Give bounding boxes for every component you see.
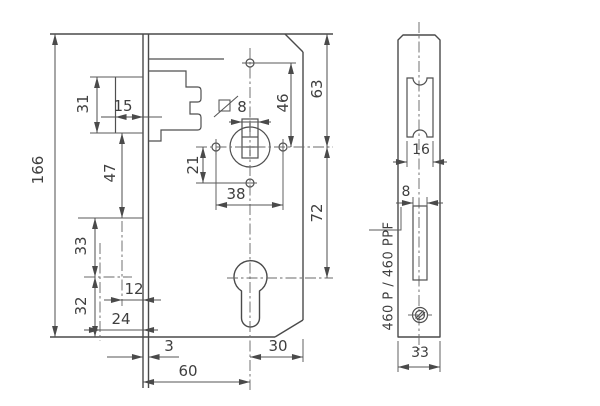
- dimension-cylinder-to-back-edge: 30: [250, 337, 303, 362]
- square-symbol: [219, 100, 230, 111]
- dimension-label: 12: [124, 280, 143, 298]
- dimension-fixing-hole-spacing: 38: [216, 152, 283, 210]
- dimension-label: 8: [402, 184, 411, 200]
- dimension-label: 166: [29, 156, 47, 185]
- dimension-label: 15: [113, 97, 132, 115]
- dimension-label: 60: [178, 362, 197, 380]
- dimension-label: 3: [164, 337, 174, 355]
- lock-dimension-drawing: 166 31 15 47 33 32: [0, 0, 600, 406]
- dimension-cylinder-to-bottom: 32: [72, 277, 95, 337]
- dimension-label: 32: [72, 296, 90, 315]
- dimension-label: 72: [308, 203, 326, 222]
- latch-cutout: [407, 78, 433, 137]
- dimension-label: 33: [411, 345, 429, 361]
- face-view: 16 8 33 460 P / 460 PPF: [369, 22, 447, 372]
- dimension-label: 47: [101, 163, 119, 182]
- dimension-label: 63: [308, 79, 326, 98]
- dimension-overall-height: 166: [29, 34, 55, 337]
- dimension-label: 16: [412, 142, 430, 158]
- dimension-top-to-hub: 63: [308, 34, 327, 147]
- cylinder-slot: [413, 206, 427, 280]
- product-model-label: 460 P / 460 PPF: [382, 221, 397, 330]
- dimension-spindle-square: 8: [214, 96, 271, 122]
- dimension-latch-protrusion: 15: [101, 97, 162, 117]
- dimension-label: 33: [72, 236, 90, 255]
- dimension-label: 21: [184, 155, 202, 174]
- technical-drawing-page: 166 31 15 47 33 32: [0, 0, 600, 406]
- dimension-latch-cutout-width: 16: [393, 141, 447, 167]
- dimension-cylinder-slot-width: 8: [369, 184, 443, 230]
- latch-bolt: [90, 59, 224, 141]
- dimension-label: 38: [226, 185, 245, 203]
- dimension-faceplate-width: 33: [398, 341, 440, 372]
- dimension-hub-to-lower-hole: 21: [184, 147, 203, 183]
- dimension-axis-block-upper: 33: [72, 218, 95, 277]
- dimension-latch-to-axis: 47: [78, 133, 143, 218]
- screw-hole: [408, 308, 432, 323]
- dimension-hub-to-top-hole: 46: [274, 63, 292, 147]
- dimension-hub-to-cylinder: 72: [308, 147, 327, 278]
- latch-bolt-body: [149, 71, 202, 141]
- dimension-label: 31: [74, 94, 92, 113]
- cylinder-hole: [234, 261, 267, 327]
- case-top-chamfer: [285, 34, 303, 52]
- dimension-label: 46: [274, 93, 292, 112]
- fixing-holes: [196, 59, 296, 187]
- dimension-label: 8: [237, 98, 247, 116]
- main-view: 166 31 15 47 33 32: [29, 34, 333, 390]
- dimension-latch-cutout-height: 31: [74, 77, 97, 133]
- dimension-backset: 60: [143, 362, 250, 382]
- dimension-label: 30: [268, 337, 287, 355]
- dimension-hole-depth-near: 12: [104, 280, 161, 300]
- case-bottom-chamfer: [275, 320, 303, 337]
- dimension-label: 24: [111, 310, 130, 328]
- square-symbol-slash: [214, 96, 238, 117]
